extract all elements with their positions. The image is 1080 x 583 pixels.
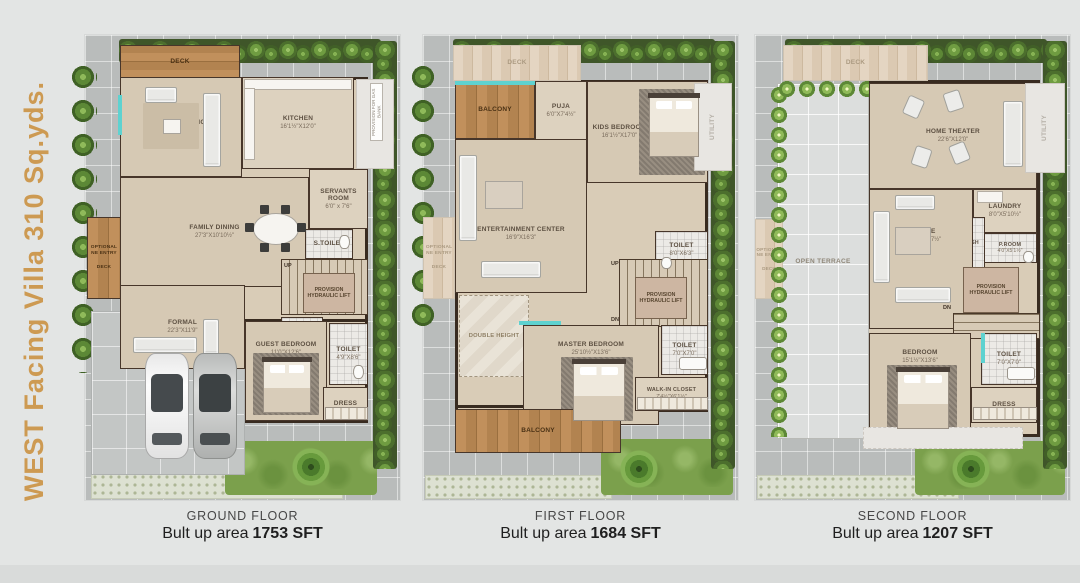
room-label: P.ROOM — [999, 242, 1021, 248]
room-label: SERVANTS ROOM — [311, 188, 366, 203]
room-deck-ghost: DECK — [453, 45, 581, 81]
room-dims: 6'0"X7'4½" — [547, 112, 576, 119]
palm-tree — [619, 449, 659, 489]
wardrobe — [973, 407, 1037, 420]
floor-title: SECOND FLOOR — [755, 509, 1070, 523]
window-accent — [981, 333, 985, 363]
stairs-dn-label: DN — [943, 305, 951, 311]
room-dims: 16'1½"X17'0" — [602, 133, 638, 140]
sofa — [481, 261, 541, 278]
room-dims: 25'10½"X13'6" — [572, 350, 611, 357]
room-label: FAMILY DINING — [189, 224, 239, 231]
lift-provision: PROVISION HYDRAULIC LIFT — [303, 273, 355, 313]
sofa — [1003, 101, 1023, 167]
room-label: LAUNDRY — [989, 203, 1022, 210]
palm-tree — [951, 449, 991, 489]
sofa — [133, 337, 197, 353]
room-label: TOILET — [672, 342, 696, 349]
room-label: DECK — [846, 59, 865, 66]
window-accent — [455, 81, 535, 85]
room-dims: 4'9"X8'6" — [337, 355, 361, 362]
villa-floorplans-poster: WEST Facing Villa 310 Sq.yds. DECK FAMIL… — [0, 0, 1080, 583]
bed — [573, 363, 625, 421]
bathtub — [1007, 367, 1035, 380]
room-dims: 8'0"X6'3" — [670, 251, 694, 258]
room-utility-ghost: UTILITY — [1025, 83, 1065, 173]
dining-chair — [281, 205, 290, 214]
page-title: WEST Facing Villa 310 Sq.yds. — [6, 0, 62, 583]
room-label: TOILET — [669, 242, 693, 249]
sofa — [145, 87, 177, 103]
terrace-flower-border — [769, 85, 791, 437]
room-double-height: DOUBLE HEIGHT — [459, 295, 529, 377]
room-servants: SERVANTS ROOM 6'0" x 7'6" — [309, 169, 368, 229]
floor-title: GROUND FLOOR — [85, 509, 400, 523]
room-puja: PUJA 6'0"X7'4½" — [535, 81, 587, 141]
room-label: DECK — [432, 265, 446, 271]
room-dims: 8'0"X5'10½" — [989, 212, 1021, 219]
washing-machine — [977, 191, 1003, 203]
dining-chair — [297, 223, 306, 232]
room-dims: 7'0"X7'0" — [997, 360, 1021, 367]
stairs-up-label: UP — [284, 263, 292, 269]
room-label: DECK — [507, 59, 526, 66]
bottom-margin-strip — [0, 565, 1080, 583]
room-dims: 4'0"X5'1½" — [998, 249, 1023, 255]
room-optional-entry-deck: OPTIONAL NE ENTRY DECK — [87, 217, 121, 299]
floor-title: FIRST FLOOR — [423, 509, 738, 523]
room-dims: 6'0" x 7'6" — [325, 204, 351, 211]
second-floor-panel: OPEN TERRACE DECK HOME THEATER 22'6"X12'… — [755, 35, 1070, 543]
area-label: Bult up area — [500, 525, 586, 542]
floor-caption: GROUND FLOOR Bult up area1753 SFT — [85, 509, 400, 543]
room-balcony: BALCONY — [455, 81, 535, 139]
tag-label: PROVISION FOR GAS BANK — [371, 84, 382, 140]
floor-caption: SECOND FLOOR Bult up area1207 SFT — [755, 509, 1070, 543]
room-label: TOILET — [336, 346, 360, 353]
room-label: MASTER BEDROOM — [558, 341, 624, 348]
room-dims: 22'3"X11'9" — [167, 328, 197, 335]
coffee-table — [485, 181, 523, 209]
kitchen-counter — [244, 79, 352, 90]
window-accent — [118, 95, 122, 135]
room-label: OPTIONAL NE ENTRY — [426, 245, 452, 256]
kitchen-counter — [244, 88, 255, 160]
lift-provision: PROVISION HYDRAULIC LIFT — [635, 277, 687, 319]
room-label: UTILITY — [1041, 115, 1048, 141]
sofa — [895, 195, 935, 210]
room-label: OPEN TERRACE — [795, 258, 850, 265]
sofa — [203, 319, 219, 355]
wardrobe — [637, 397, 708, 410]
stairs-up-label: UP — [611, 261, 619, 267]
area-label: Bult up area — [832, 525, 918, 542]
area-value: 1684 SFT — [591, 525, 661, 542]
first-floor-plan: DECK BALCONY PUJA 6'0"X7'4½" KIDS BEDROO… — [423, 35, 738, 500]
area-label: Bult up area — [162, 525, 248, 542]
room-label: WALK-IN CLOSET — [647, 387, 696, 393]
ground-floor-panel: DECK FAMILY LIVING 16'9"X12'4½" KITCHEN … — [85, 35, 400, 543]
sofa — [203, 93, 221, 167]
second-floor-plan: OPEN TERRACE DECK HOME THEATER 22'6"X12'… — [755, 35, 1070, 500]
room-label: UTILITY — [709, 114, 716, 140]
bed — [263, 361, 311, 413]
room-label: DECK — [97, 265, 111, 271]
wc-fixture — [661, 257, 672, 269]
room-dims: 27'3"X10'10½" — [195, 233, 234, 240]
dining-chair — [281, 243, 290, 252]
dining-table — [253, 213, 299, 245]
room-label: DOUBLE HEIGHT — [469, 333, 520, 340]
wc-fixture — [353, 365, 364, 379]
ground-floor-plan: DECK FAMILY LIVING 16'9"X12'4½" KITCHEN … — [85, 35, 400, 500]
room-dims: 16'1½"X12'0" — [280, 124, 316, 131]
first-floor-panel: DECK BALCONY PUJA 6'0"X7'4½" KIDS BEDROO… — [423, 35, 738, 543]
page-title-text: WEST Facing Villa 310 Sq.yds. — [19, 81, 50, 501]
dining-chair — [245, 223, 254, 232]
room-label: BEDROOM — [902, 349, 937, 356]
window-accent — [519, 321, 561, 325]
bed — [897, 371, 949, 429]
area-value: 1207 SFT — [923, 525, 993, 542]
room-label: BALCONY — [478, 106, 512, 113]
room-dims: 15'1½"X13'6" — [902, 358, 938, 365]
lift-provision: PROVISION HYDRAULIC LIFT — [963, 267, 1019, 313]
room-label: FORMAL — [168, 319, 197, 326]
stairs-dn-label: DN — [611, 317, 619, 323]
room-label: BALCONY — [521, 427, 555, 434]
floor-area: Bult up area1684 SFT — [423, 525, 738, 543]
room-label: GUEST BEDROOM — [256, 341, 317, 348]
room-deck: DECK — [120, 45, 240, 79]
room-label: PUJA — [552, 103, 570, 110]
pebble-bed — [425, 475, 612, 499]
bathtub — [679, 357, 707, 370]
wc-fixture — [1023, 251, 1034, 263]
bed — [649, 97, 699, 157]
dining-chair — [260, 205, 269, 214]
room-label: TOILET — [997, 351, 1021, 358]
car-silver — [193, 353, 237, 459]
balcony-ghost — [863, 427, 1023, 449]
dining-chair — [260, 243, 269, 252]
area-value: 1753 SFT — [253, 525, 323, 542]
room-label: HOME THEATER — [926, 128, 980, 135]
room-label: DECK — [170, 58, 189, 65]
room-deck-ghost: DECK — [783, 45, 928, 81]
room-label: ENTERTAINMENT CENTER — [477, 226, 565, 233]
room-label: OPTIONAL NE ENTRY — [90, 245, 118, 256]
floor-caption: FIRST FLOOR Bult up area1684 SFT — [423, 509, 738, 543]
coffee-table — [163, 119, 181, 134]
gas-bank-tag: PROVISION FOR GAS BANK — [370, 83, 383, 141]
floor-area: Bult up area1207 SFT — [755, 525, 1070, 543]
room-dims: 16'9"X16'3" — [506, 235, 537, 242]
room-kitchen: KITCHEN 16'1½"X12'0" — [242, 77, 354, 169]
floor-area: Bult up area1753 SFT — [85, 525, 400, 543]
room-label: KITCHEN — [283, 115, 313, 122]
sofa — [459, 155, 477, 241]
palm-tree — [291, 447, 331, 487]
coffee-table — [895, 227, 931, 255]
sofa — [873, 211, 890, 283]
wc-fixture — [339, 235, 350, 249]
room-optional-entry-deck-ghost: OPTIONAL NE ENTRY DECK — [423, 217, 455, 299]
sofa — [895, 287, 951, 303]
terrace-flower-border — [777, 79, 869, 97]
car-white — [145, 353, 189, 459]
wardrobe — [325, 407, 368, 420]
